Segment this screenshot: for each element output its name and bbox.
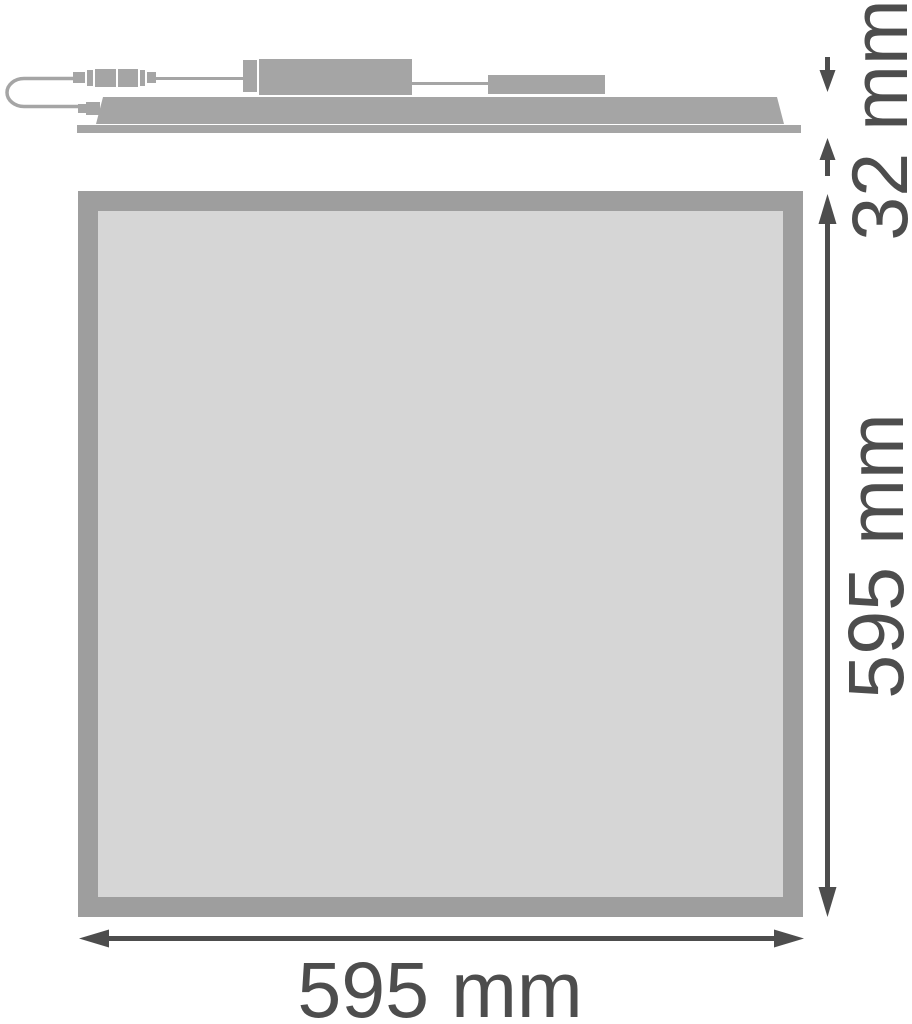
- depth-arrow-top: [820, 57, 836, 92]
- depth-arrow-bottom: [820, 138, 836, 176]
- panel-dimension-drawing: 32 mm 595 mm 595 mm: [0, 0, 912, 1024]
- width-dimension-label: 595 mm: [240, 950, 640, 1024]
- dimension-lines: [0, 0, 912, 1024]
- depth-dimension-label: 32 mm: [840, 0, 912, 320]
- height-dimension-label: 595 mm: [836, 356, 912, 756]
